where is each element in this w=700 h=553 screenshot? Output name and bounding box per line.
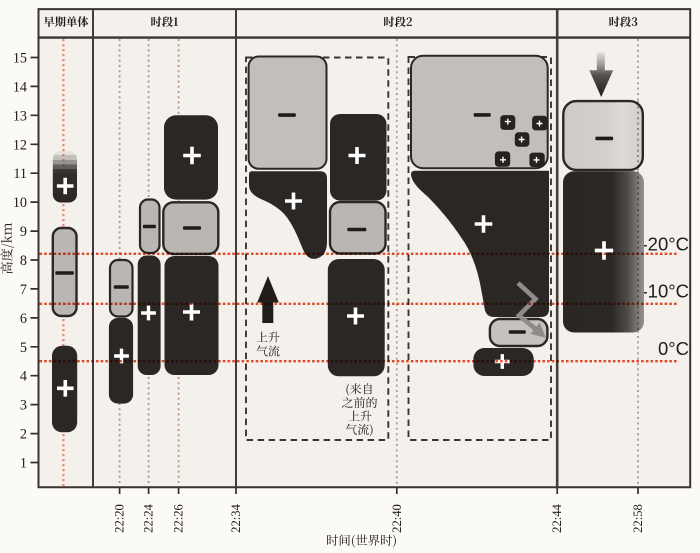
svg-text:6: 6 bbox=[20, 311, 27, 327]
svg-text:1: 1 bbox=[20, 456, 27, 472]
svg-text:5: 5 bbox=[20, 340, 27, 356]
svg-text:7: 7 bbox=[20, 282, 27, 298]
svg-text:22:34: 22:34 bbox=[229, 503, 243, 532]
svg-text:3: 3 bbox=[20, 398, 27, 414]
svg-text:0°C: 0°C bbox=[658, 338, 689, 359]
svg-text:22:26: 22:26 bbox=[172, 504, 186, 533]
svg-text:10: 10 bbox=[13, 195, 27, 211]
svg-text:8: 8 bbox=[20, 253, 27, 269]
svg-text:22:40: 22:40 bbox=[390, 504, 404, 533]
svg-text:-10°C: -10°C bbox=[642, 281, 690, 302]
svg-text:22:20: 22:20 bbox=[113, 504, 127, 533]
svg-text:22:58: 22:58 bbox=[631, 504, 645, 533]
svg-text:14: 14 bbox=[13, 79, 27, 95]
svg-text:9: 9 bbox=[20, 224, 27, 240]
svg-text:12: 12 bbox=[13, 137, 27, 153]
svg-text:22:24: 22:24 bbox=[142, 503, 156, 532]
svg-text:15: 15 bbox=[13, 51, 27, 67]
svg-text:11: 11 bbox=[13, 166, 27, 182]
svg-text:22:44: 22:44 bbox=[550, 503, 564, 532]
svg-text:2: 2 bbox=[20, 427, 27, 443]
svg-text:4: 4 bbox=[20, 369, 27, 385]
svg-text:13: 13 bbox=[13, 108, 27, 124]
svg-text:-20°C: -20°C bbox=[642, 234, 690, 255]
